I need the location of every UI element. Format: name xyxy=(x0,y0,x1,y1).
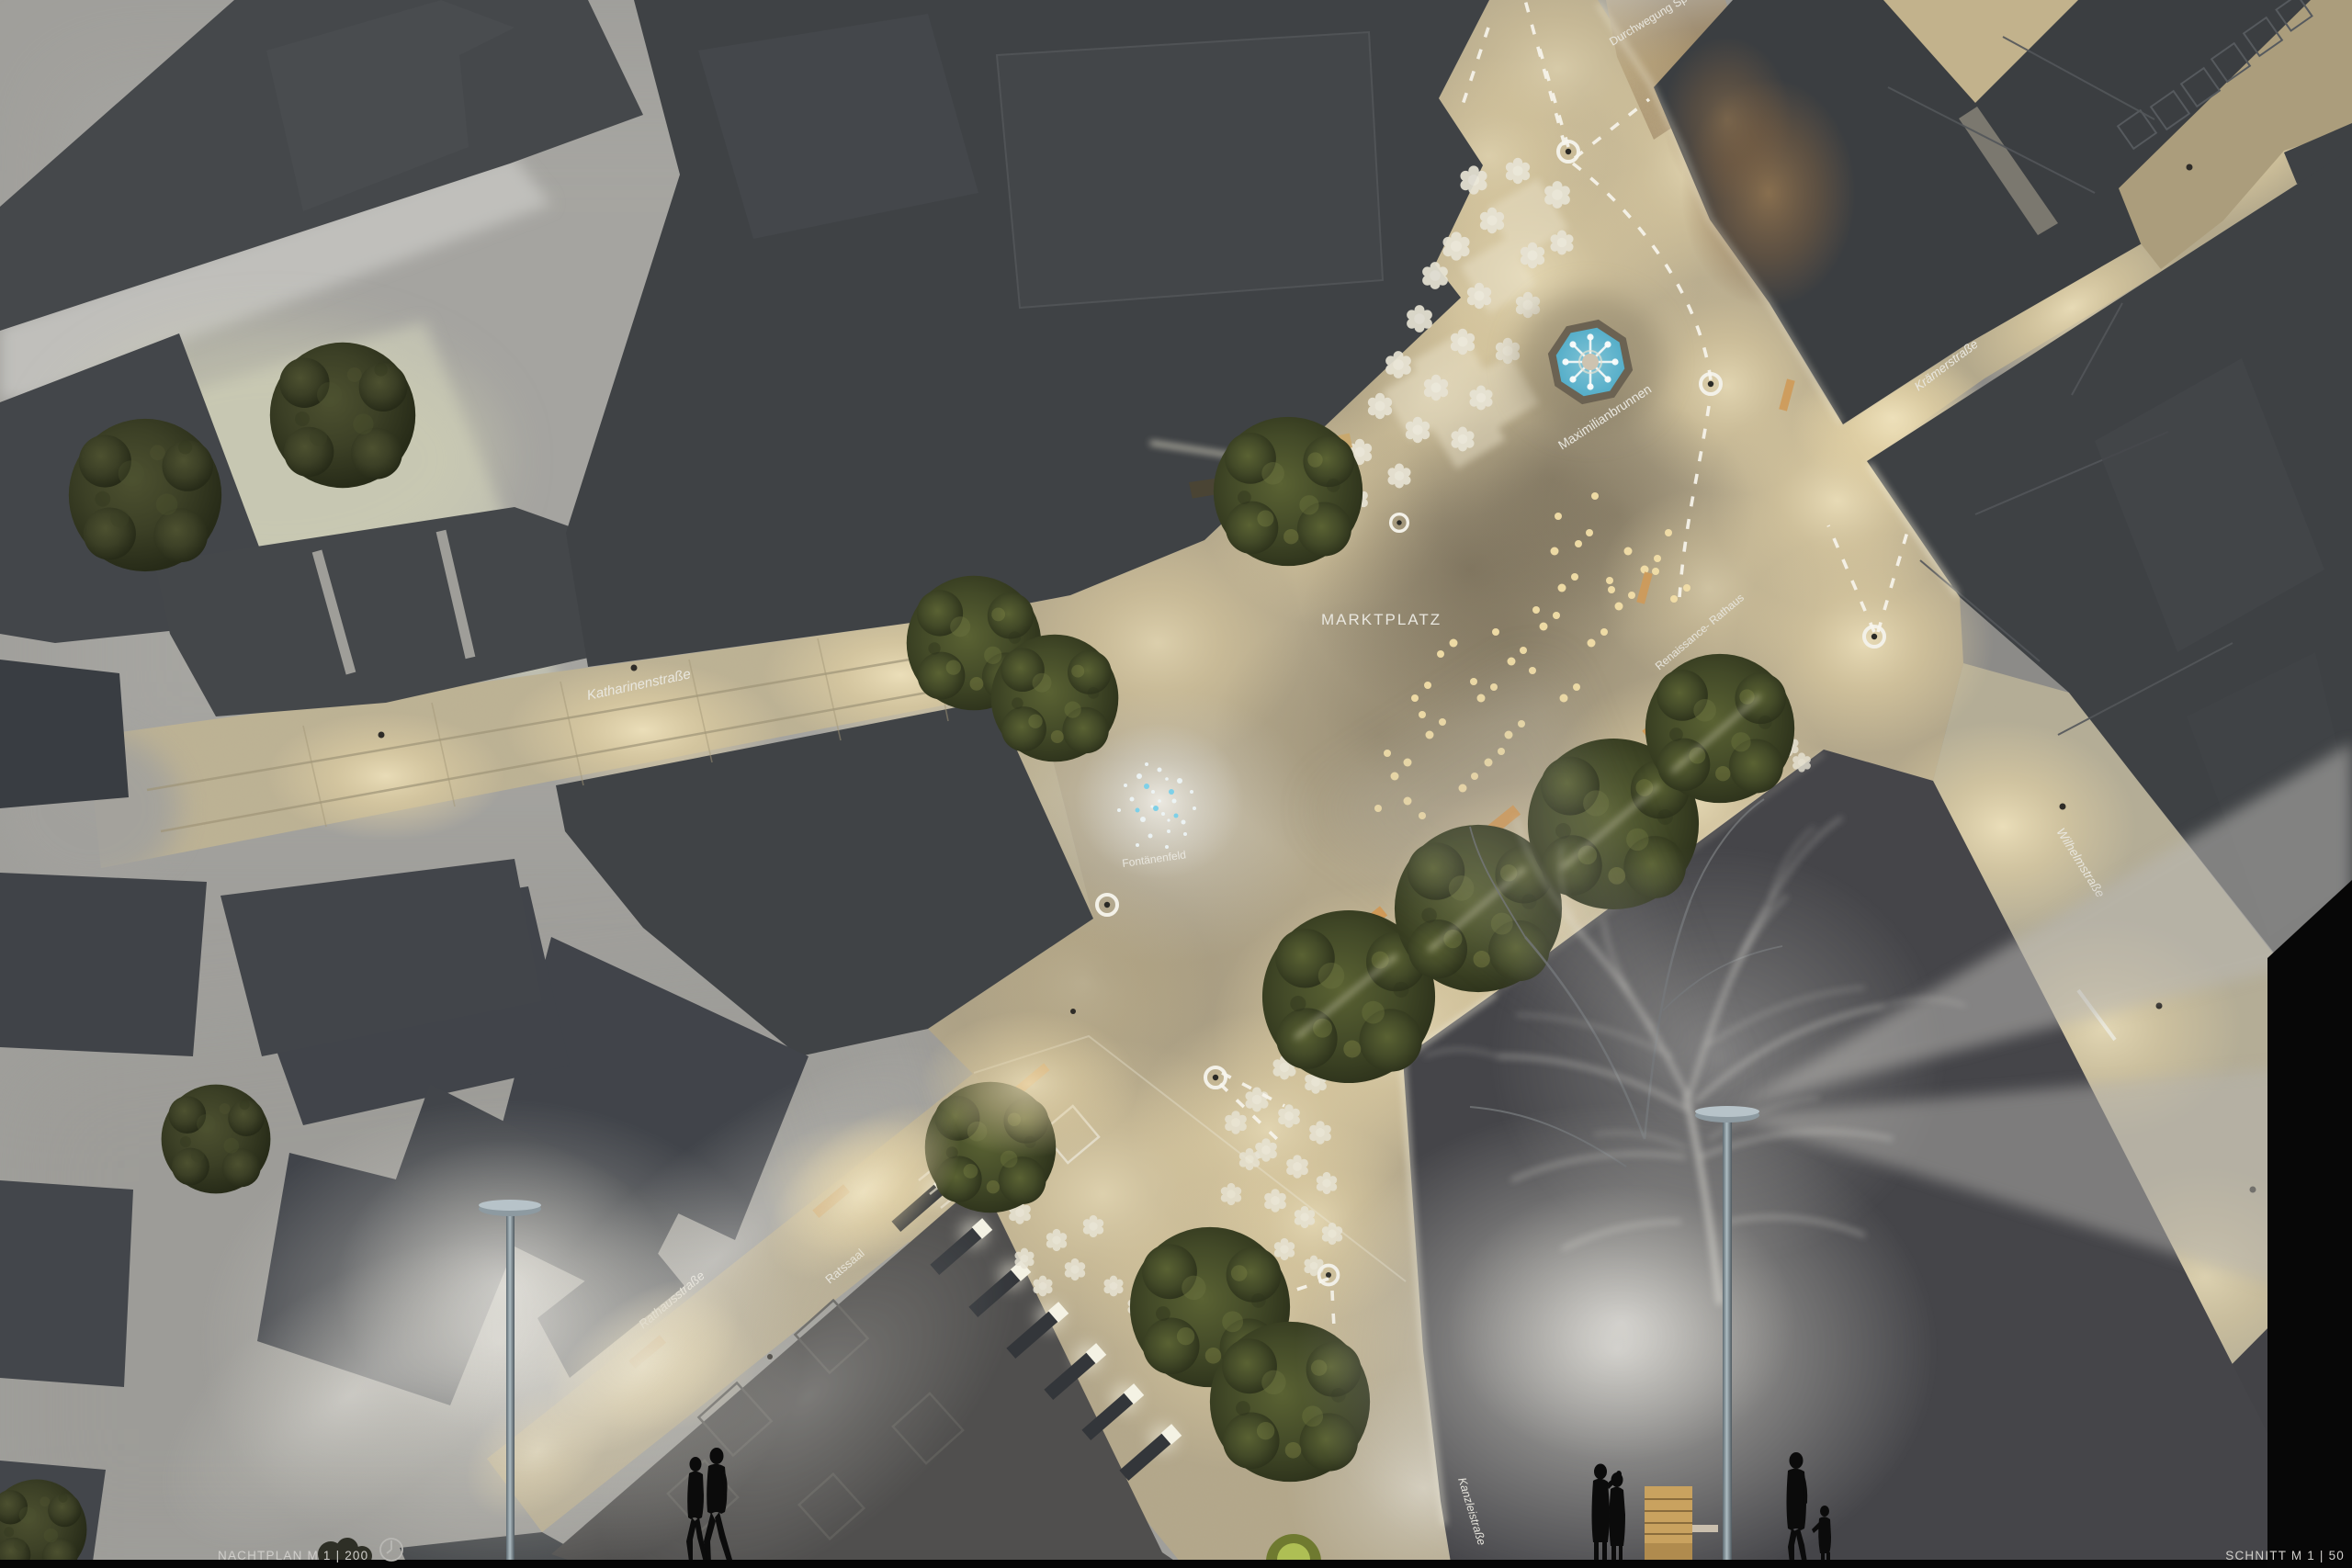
svg-text:SCHNITT M 1 | 50: SCHNITT M 1 | 50 xyxy=(2225,1549,2345,1562)
svg-text:MARKTPLATZ: MARKTPLATZ xyxy=(1321,611,1442,628)
svg-text:NACHTPLAN M 1 | 200: NACHTPLAN M 1 | 200 xyxy=(218,1549,368,1562)
